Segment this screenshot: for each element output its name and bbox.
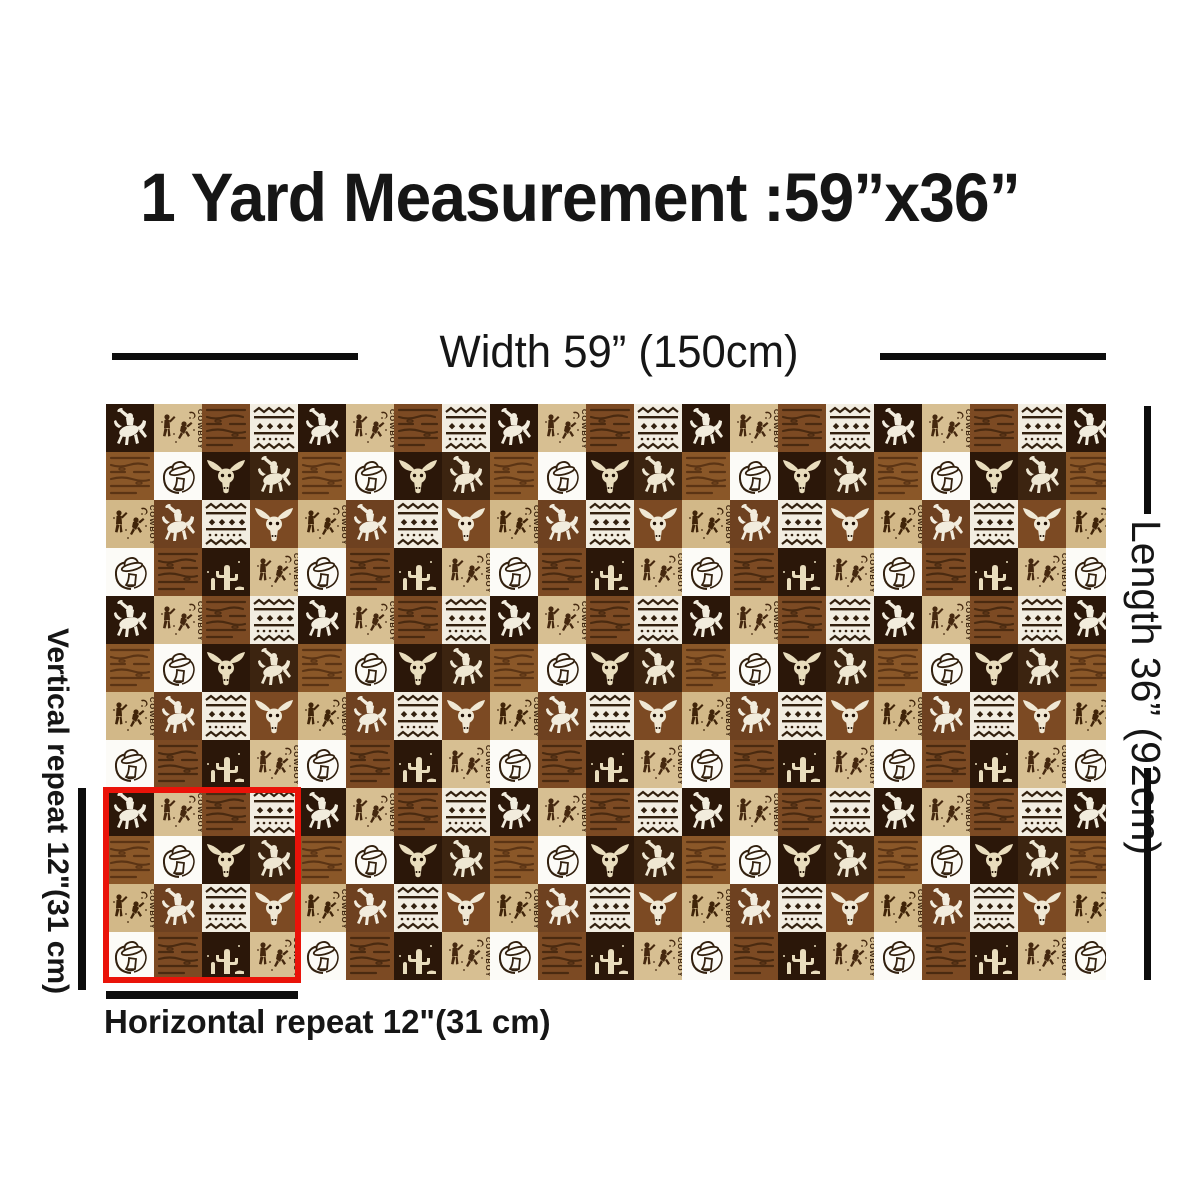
repeat-outline-box <box>103 787 301 983</box>
vertical-repeat-line <box>78 788 86 990</box>
measurement-diagram: 1 Yard Measurement :59”x36” Width 59” (1… <box>0 0 1200 1200</box>
vertical-repeat-label: Vertical repeat 12"(31 cm) <box>40 628 74 994</box>
width-line-left <box>112 353 358 360</box>
horizontal-repeat-line <box>106 991 298 999</box>
length-line-top <box>1144 406 1151 514</box>
length-line-bottom <box>1144 768 1151 980</box>
page-title: 1 Yard Measurement :59”x36” <box>22 158 1138 237</box>
width-line-right <box>880 353 1106 360</box>
horizontal-repeat-label: Horizontal repeat 12"(31 cm) <box>104 1003 551 1041</box>
width-label: Width 59” (150cm) <box>366 326 872 378</box>
